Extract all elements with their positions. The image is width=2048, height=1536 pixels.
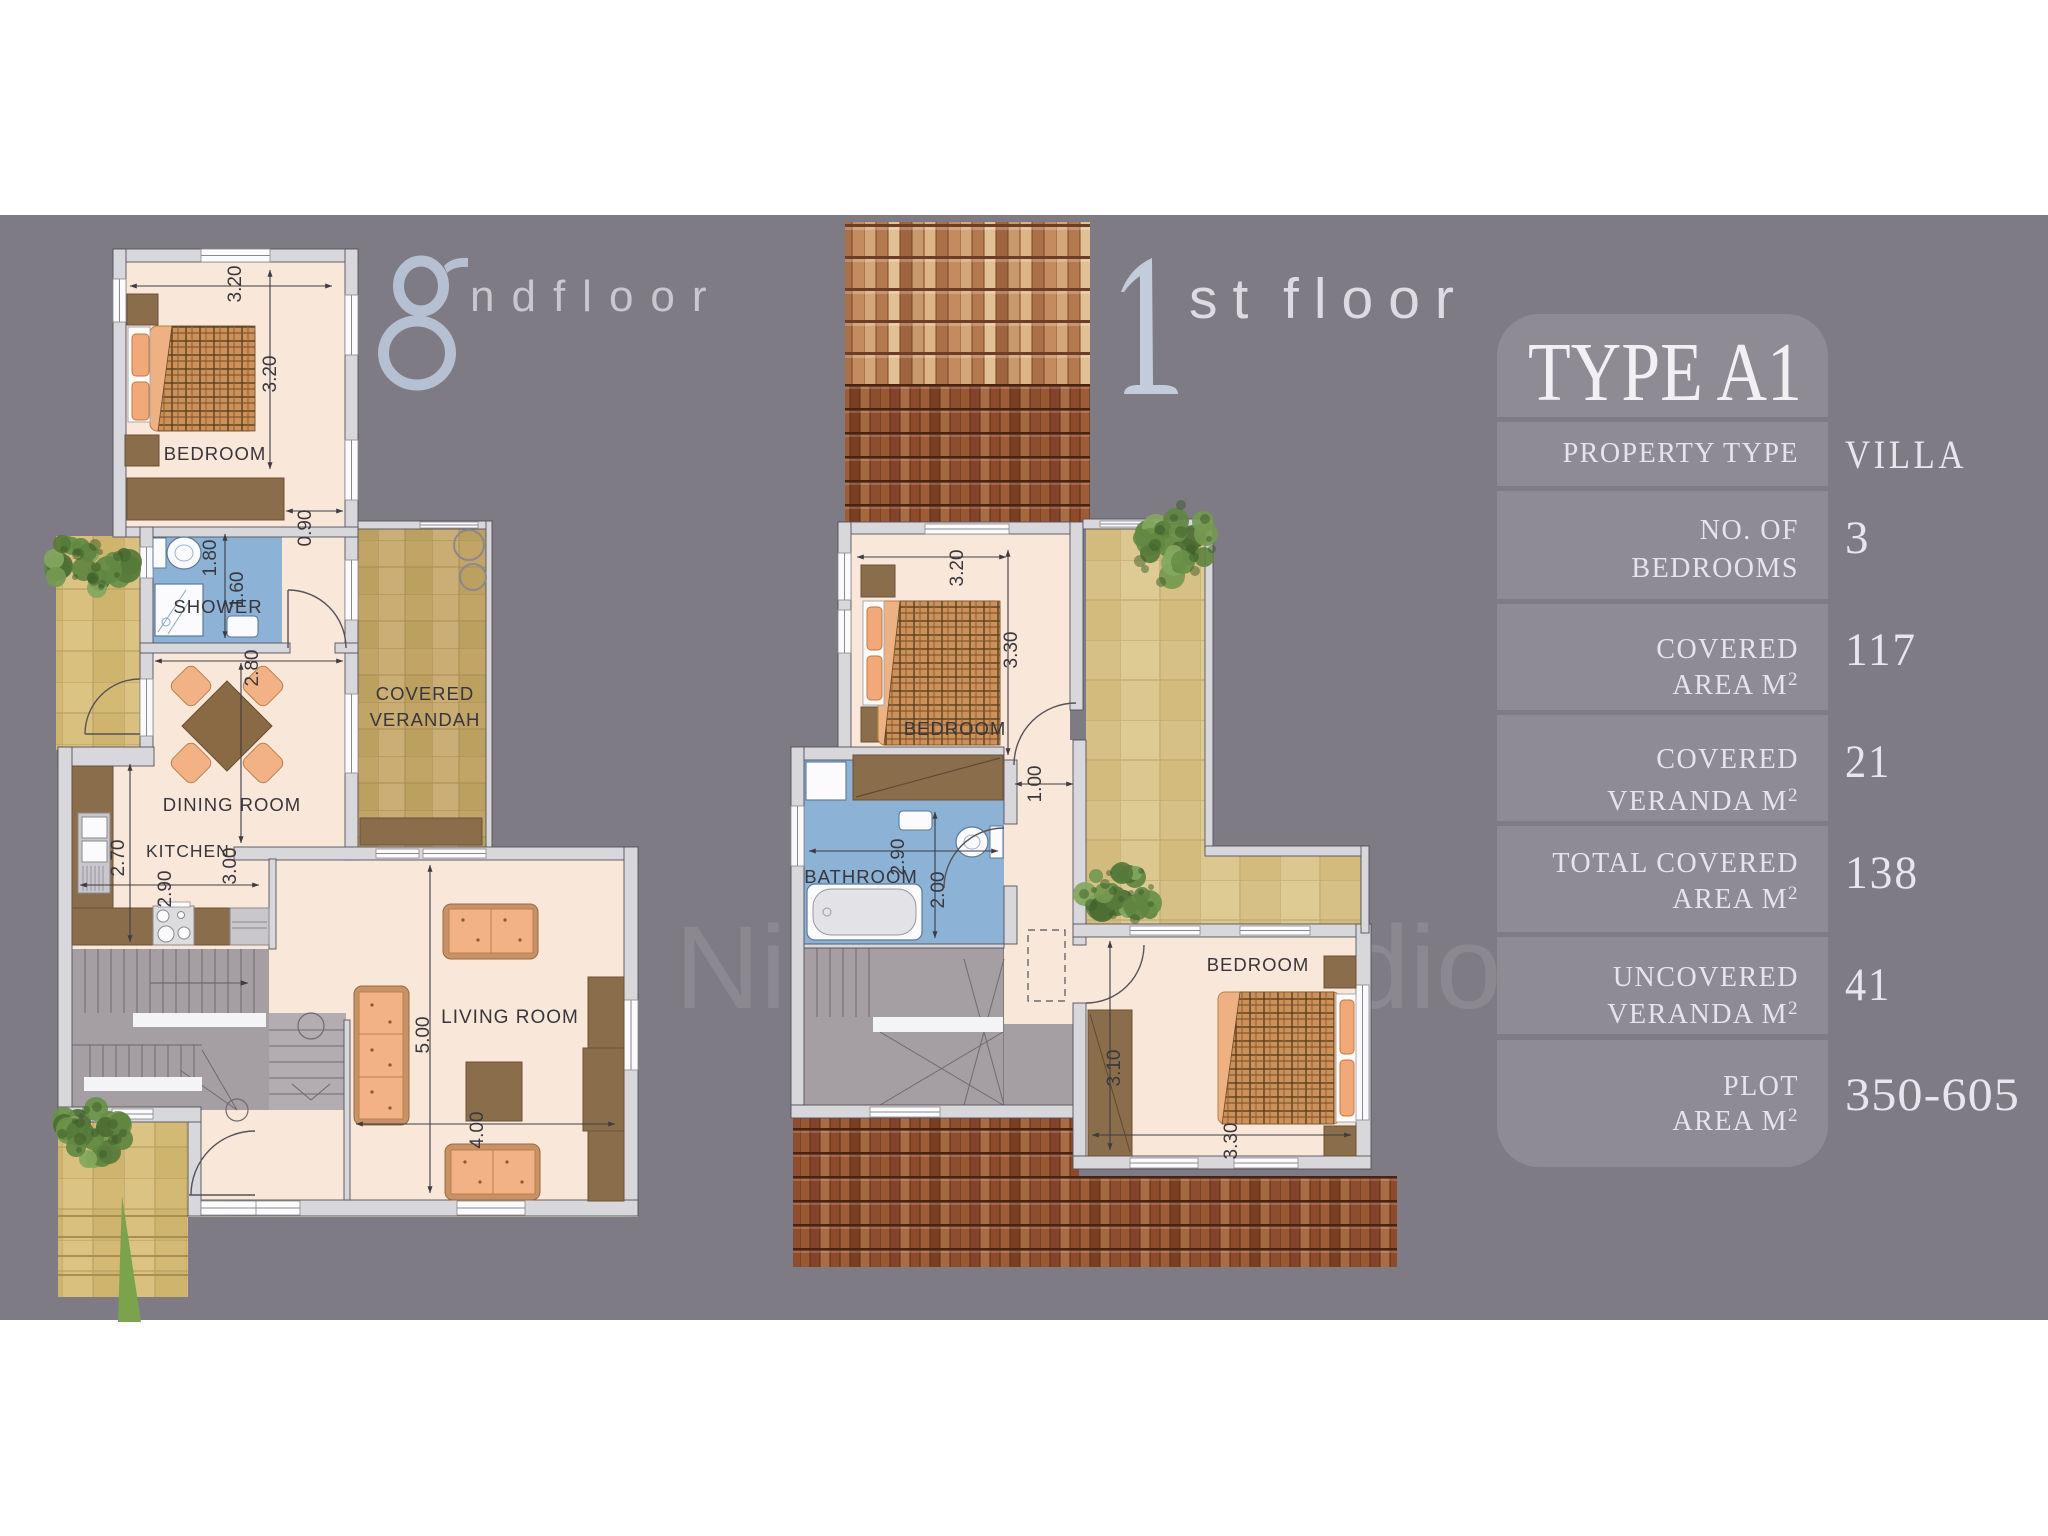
svg-text:TYPE A1: TYPE A1 bbox=[1528, 326, 1802, 419]
svg-text:COVERED: COVERED bbox=[376, 683, 475, 704]
svg-text:COVERED: COVERED bbox=[1656, 744, 1799, 775]
svg-text:PLOT: PLOT bbox=[1723, 1071, 1799, 1102]
svg-text:VERANDAH: VERANDAH bbox=[370, 709, 481, 730]
svg-text:3.20: 3.20 bbox=[225, 266, 246, 303]
svg-text:3.20: 3.20 bbox=[260, 356, 281, 393]
svg-text:BATHROOM: BATHROOM bbox=[804, 866, 918, 887]
svg-text:AREA M2: AREA M2 bbox=[1672, 669, 1799, 701]
svg-text:BEDROOM: BEDROOM bbox=[904, 718, 1007, 739]
svg-text:41: 41 bbox=[1845, 959, 1891, 1011]
svg-text:3: 3 bbox=[1845, 512, 1869, 564]
svg-text:2.70: 2.70 bbox=[108, 840, 129, 877]
svg-text:PROPERTY TYPE: PROPERTY TYPE bbox=[1563, 438, 1799, 469]
svg-text:0.90: 0.90 bbox=[295, 510, 316, 547]
svg-text:ndfloor: ndfloor bbox=[470, 272, 724, 321]
svg-text:VERANDA M2: VERANDA M2 bbox=[1607, 785, 1799, 817]
svg-text:3.30: 3.30 bbox=[1221, 1123, 1242, 1160]
svg-text:2.80: 2.80 bbox=[242, 650, 263, 687]
svg-text:AREA M2: AREA M2 bbox=[1672, 883, 1799, 915]
svg-text:5.00: 5.00 bbox=[413, 1017, 434, 1054]
svg-text:DINING ROOM: DINING ROOM bbox=[163, 794, 301, 815]
svg-text:SHOWER: SHOWER bbox=[173, 596, 262, 617]
svg-text:COVERED: COVERED bbox=[1656, 634, 1799, 665]
svg-text:350-605: 350-605 bbox=[1845, 1069, 2020, 1121]
svg-text:KITCHEN: KITCHEN bbox=[146, 841, 230, 861]
svg-text:BEDROOMS: BEDROOMS bbox=[1631, 553, 1799, 584]
svg-text:138: 138 bbox=[1845, 847, 1919, 899]
svg-text:3.30: 3.30 bbox=[1001, 632, 1022, 669]
svg-text:LIVING ROOM: LIVING ROOM bbox=[441, 1007, 579, 1028]
svg-text:3.10: 3.10 bbox=[1104, 1050, 1125, 1087]
svg-text:1.00: 1.00 bbox=[1025, 766, 1046, 803]
svg-text:floor: floor bbox=[1283, 267, 1469, 331]
svg-text:TOTAL COVERED: TOTAL COVERED bbox=[1552, 848, 1799, 879]
svg-text:NO. OF: NO. OF bbox=[1700, 515, 1799, 546]
svg-text:VERANDA M2: VERANDA M2 bbox=[1607, 998, 1799, 1030]
svg-text:2.00: 2.00 bbox=[928, 872, 949, 909]
svg-text:3.20: 3.20 bbox=[947, 550, 968, 587]
svg-text:AREA M2: AREA M2 bbox=[1672, 1105, 1799, 1137]
svg-text:BEDROOM: BEDROOM bbox=[164, 443, 267, 464]
svg-text:1.80: 1.80 bbox=[200, 540, 221, 577]
svg-text:21: 21 bbox=[1845, 736, 1891, 788]
svg-text:4.00: 4.00 bbox=[467, 1112, 488, 1149]
svg-text:BEDROOM: BEDROOM bbox=[1207, 954, 1310, 975]
svg-text:2.90: 2.90 bbox=[155, 871, 176, 908]
svg-text:117: 117 bbox=[1845, 624, 1917, 676]
svg-text:st: st bbox=[1189, 267, 1263, 331]
svg-text:UNCOVERED: UNCOVERED bbox=[1613, 962, 1799, 993]
svg-text:VILLA: VILLA bbox=[1845, 432, 1967, 477]
